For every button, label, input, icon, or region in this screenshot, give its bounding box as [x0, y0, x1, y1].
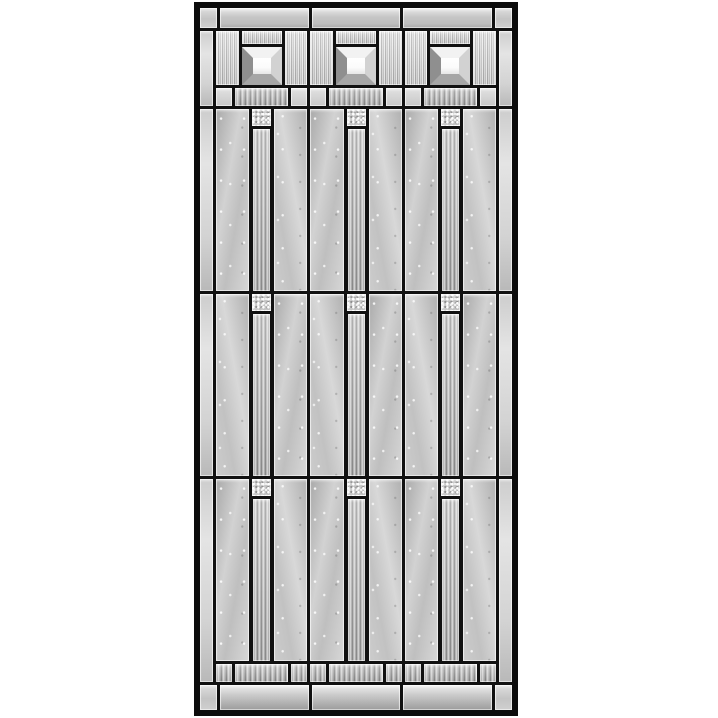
door-glass-insert [194, 2, 518, 716]
gem-column [441, 479, 460, 661]
panel-module [216, 479, 307, 682]
ribbed-band [405, 664, 496, 682]
corner-glass-square [200, 8, 217, 28]
speckled-glass-panel [310, 479, 343, 661]
plain-glass-square [310, 88, 326, 106]
gem-column [347, 109, 366, 291]
plain-glass-square [480, 88, 496, 106]
rail-glass-panel [220, 685, 309, 710]
ribbed-band [216, 88, 307, 106]
ribbed-glass-square [405, 664, 421, 682]
gem-glass-square [441, 294, 460, 311]
ribbed-glass-strip [235, 664, 288, 682]
speckled-glass-panel [274, 479, 307, 661]
ribbed-column-strip [348, 314, 365, 476]
gem-column [252, 479, 271, 661]
tall-panel-row [200, 294, 512, 476]
rail-glass-panel [220, 8, 309, 28]
plain-glass-square [405, 88, 421, 106]
speckled-glass-panel [310, 294, 343, 476]
gem-glass-square [347, 479, 366, 496]
gem-column [347, 294, 366, 476]
edge-glass-strip [200, 479, 213, 682]
grain-glass-cap [430, 31, 470, 44]
ribbed-column-strip [442, 314, 459, 476]
speckled-glass-panel [274, 109, 307, 291]
bevel-jewel-unit [242, 31, 282, 85]
ribbed-glass-strip [424, 664, 477, 682]
grain-glass-panel [473, 31, 496, 85]
panel-module [405, 479, 496, 682]
panel-module [405, 294, 496, 476]
gem-glass-square [441, 479, 460, 496]
pyramid-bevel-jewel [430, 47, 470, 85]
ribbed-glass-square [386, 664, 402, 682]
bevel-jewel-unit [336, 31, 376, 85]
ribbed-column-strip [253, 129, 270, 291]
speckled-glass-panel [463, 109, 496, 291]
corner-glass-square [200, 685, 217, 710]
edge-glass-strip [499, 31, 512, 106]
panel-module [405, 109, 496, 291]
grain-glass-panel [405, 31, 428, 85]
speckled-glass-panel [369, 294, 402, 476]
ribbed-glass-square [216, 664, 232, 682]
jewel-row [310, 31, 401, 85]
bottom-rail-row [200, 685, 512, 710]
tall-panel-row [200, 109, 512, 291]
panel-module [310, 294, 401, 476]
edge-glass-strip [499, 109, 512, 291]
edge-glass-strip [499, 294, 512, 476]
rail-glass-panel [312, 685, 401, 710]
ribbed-glass-strip [235, 88, 288, 106]
ribbed-column-strip [253, 314, 270, 476]
speckled-glass-panel [216, 479, 249, 661]
ribbed-column-strip [253, 499, 270, 661]
gem-glass-square [441, 109, 460, 126]
jewel-module [216, 31, 307, 106]
gem-glass-square [252, 479, 271, 496]
gem-column [252, 109, 271, 291]
gem-column [252, 294, 271, 476]
panel-module [310, 479, 401, 682]
plain-glass-square [386, 88, 402, 106]
edge-glass-strip [200, 31, 213, 106]
grain-glass-cap [336, 31, 376, 44]
leaded-glass-panel [200, 8, 512, 710]
ribbed-band [310, 664, 401, 682]
pyramid-bevel-jewel [336, 47, 376, 85]
ribbed-band [216, 664, 307, 682]
grain-glass-cap [242, 31, 282, 44]
ribbed-column-strip [442, 499, 459, 661]
speckled-glass-panel [369, 479, 402, 661]
rail-glass-panel [312, 8, 401, 28]
plain-glass-square [291, 88, 307, 106]
ribbed-glass-strip [329, 88, 382, 106]
speckled-glass-panel [310, 109, 343, 291]
rail-glass-panel [403, 685, 492, 710]
pyramid-bevel-jewel [242, 47, 282, 85]
bevel-jewel-section [200, 31, 512, 106]
grain-glass-panel [379, 31, 402, 85]
edge-glass-strip [200, 294, 213, 476]
top-rail-row [200, 8, 512, 28]
speckled-glass-panel [369, 109, 402, 291]
speckled-glass-panel [405, 109, 438, 291]
ribbed-band [310, 88, 401, 106]
speckled-glass-panel [216, 109, 249, 291]
gem-column [441, 294, 460, 476]
ribbed-glass-strip [329, 664, 382, 682]
rail-glass-panel [403, 8, 492, 28]
gem-glass-square [252, 294, 271, 311]
grain-glass-panel [310, 31, 333, 85]
grain-glass-panel [216, 31, 239, 85]
gem-glass-square [347, 109, 366, 126]
speckled-glass-panel [463, 479, 496, 661]
panel-module [216, 294, 307, 476]
corner-glass-square [495, 685, 512, 710]
panel-module [216, 109, 307, 291]
gem-glass-square [347, 294, 366, 311]
ribbed-column-strip [442, 129, 459, 291]
tall-panel-row-with-band [200, 479, 512, 682]
grain-glass-panel [285, 31, 308, 85]
ribbed-glass-square [310, 664, 326, 682]
panel-module [310, 109, 401, 291]
ribbed-column-strip [348, 499, 365, 661]
gem-glass-square [252, 109, 271, 126]
speckled-glass-panel [405, 294, 438, 476]
speckled-glass-panel [463, 294, 496, 476]
speckled-glass-panel [216, 294, 249, 476]
speckled-glass-panel [274, 294, 307, 476]
ribbed-glass-square [291, 664, 307, 682]
speckled-glass-panel [405, 479, 438, 661]
jewel-module [310, 31, 401, 106]
ribbed-glass-square [480, 664, 496, 682]
ribbed-band [405, 88, 496, 106]
jewel-module [405, 31, 496, 106]
edge-glass-strip [499, 479, 512, 682]
gem-column [347, 479, 366, 661]
plain-glass-square [216, 88, 232, 106]
ribbed-column-strip [348, 129, 365, 291]
jewel-row [405, 31, 496, 85]
jewel-row [216, 31, 307, 85]
bevel-jewel-unit [430, 31, 470, 85]
ribbed-glass-strip [424, 88, 477, 106]
corner-glass-square [495, 8, 512, 28]
gem-column [441, 109, 460, 291]
edge-glass-strip [200, 109, 213, 291]
